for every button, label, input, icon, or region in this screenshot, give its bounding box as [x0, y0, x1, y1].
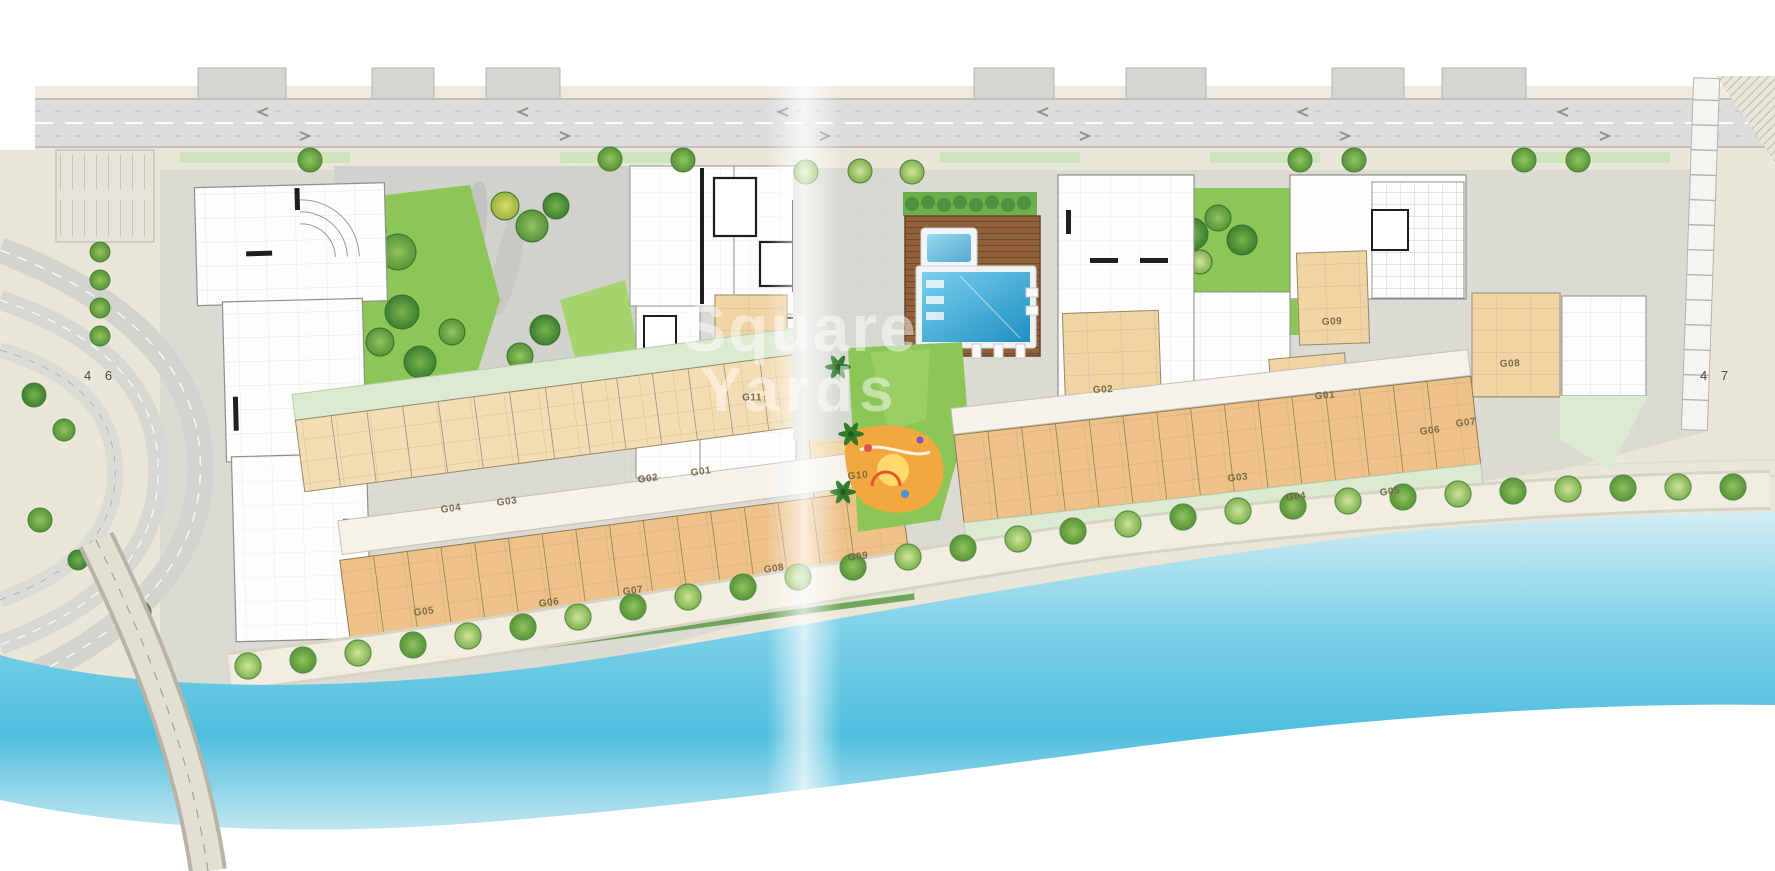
kids-pool — [921, 228, 977, 268]
main-pool — [916, 266, 1036, 348]
unit-label: G08 — [1500, 358, 1521, 370]
site-plan-svg — [0, 0, 1775, 871]
unit-label: G11 — [742, 393, 762, 404]
unit-label: G10 — [847, 470, 868, 483]
brochure-spread-site-plan: Square Yards G11G10G01G02G03G04G05G06G07… — [0, 0, 1775, 871]
unit-label: G02 — [1093, 384, 1114, 396]
unit-label: G01 — [1314, 390, 1335, 403]
page-number-left: 4 6 — [84, 368, 117, 383]
unit-label: G09 — [1322, 316, 1343, 328]
page-number-right: 4 7 — [1700, 368, 1733, 383]
